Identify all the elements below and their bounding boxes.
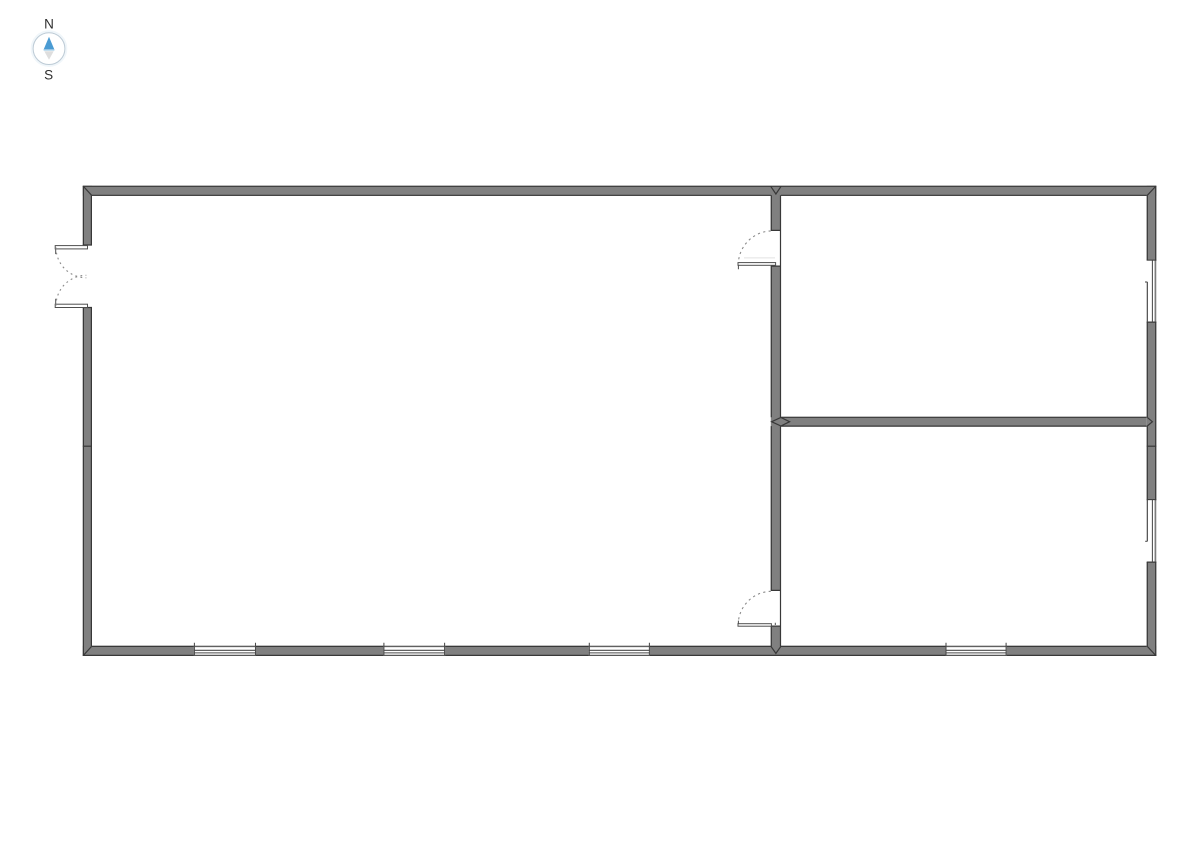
svg-text:N: N [44,17,54,32]
svg-text:S: S [44,68,53,83]
